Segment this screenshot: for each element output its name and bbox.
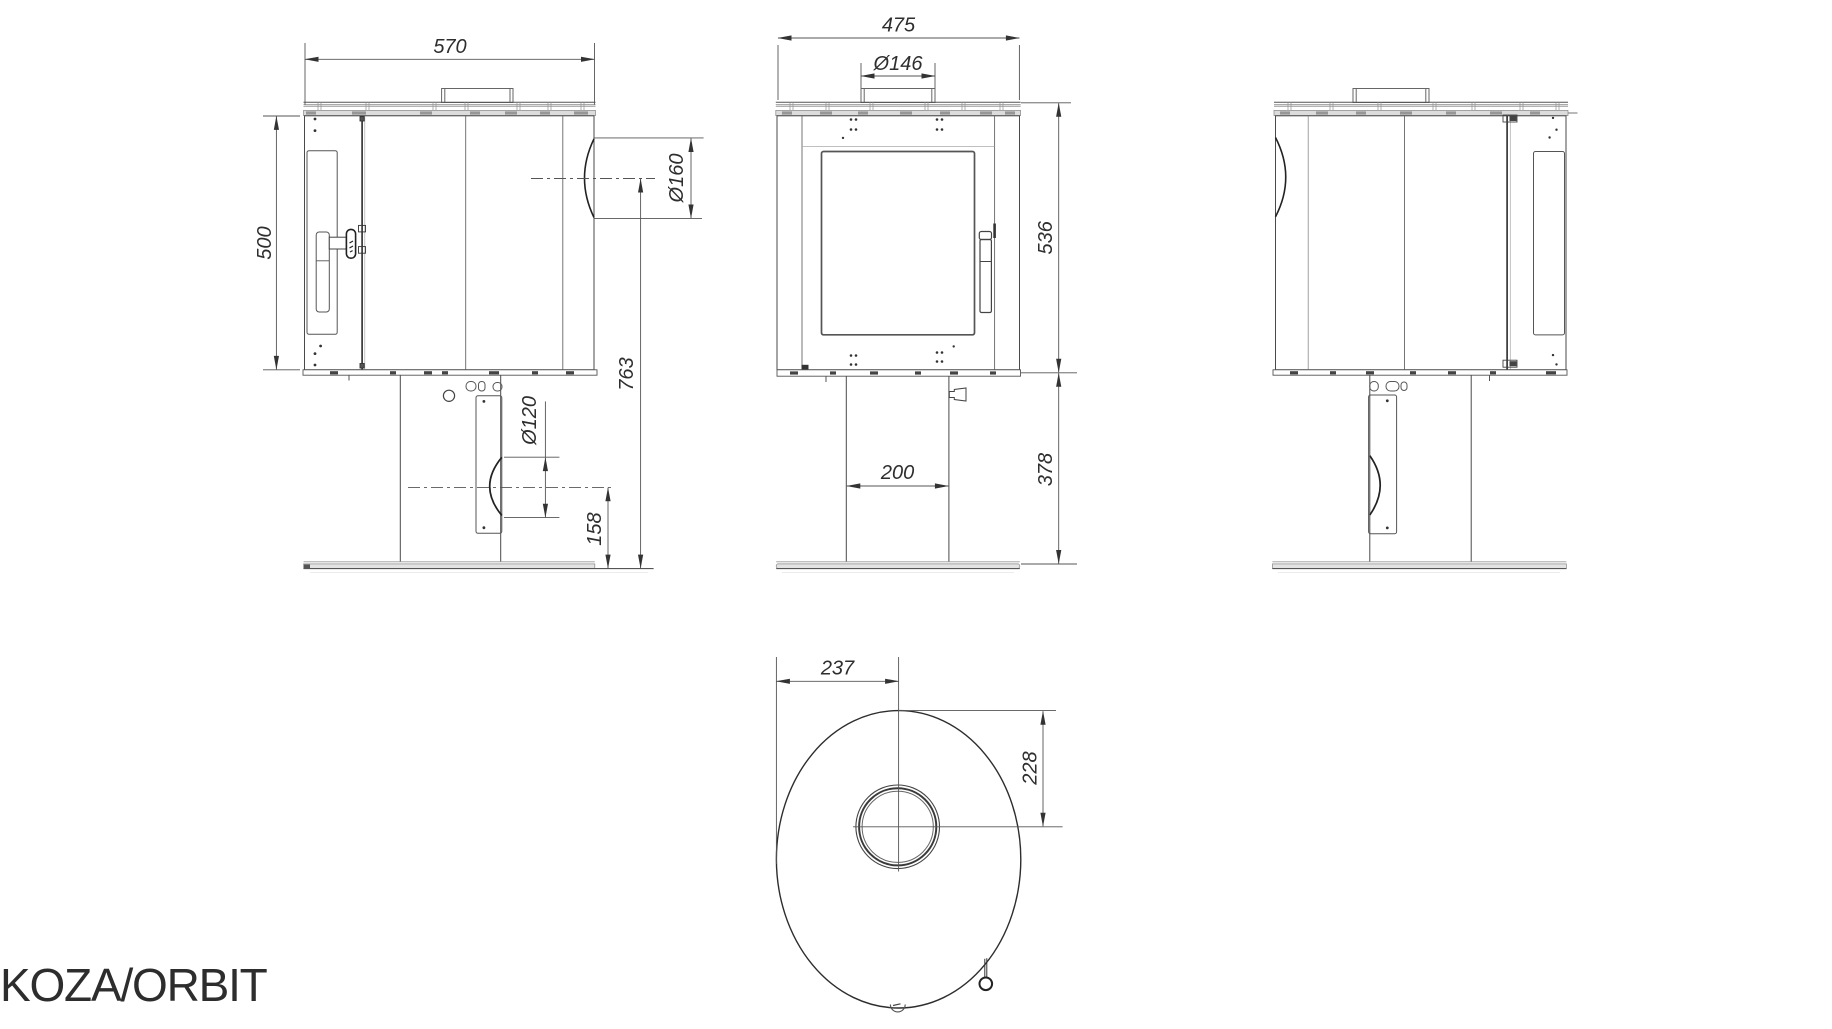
svg-text:378: 378 (1035, 453, 1057, 486)
svg-text:763: 763 (616, 357, 638, 390)
svg-text:570: 570 (433, 36, 466, 58)
svg-text:Ø160: Ø160 (666, 154, 688, 204)
svg-text:536: 536 (1035, 220, 1057, 254)
svg-text:KOZA/ORBIT: KOZA/ORBIT (0, 959, 268, 1011)
svg-text:475: 475 (882, 15, 916, 37)
svg-text:500: 500 (254, 226, 276, 259)
svg-text:Ø120: Ø120 (519, 396, 541, 446)
svg-text:Ø146: Ø146 (873, 53, 924, 75)
svg-text:200: 200 (880, 462, 914, 484)
svg-text:228: 228 (1020, 751, 1042, 785)
svg-text:158: 158 (584, 512, 606, 545)
svg-text:237: 237 (820, 658, 855, 680)
